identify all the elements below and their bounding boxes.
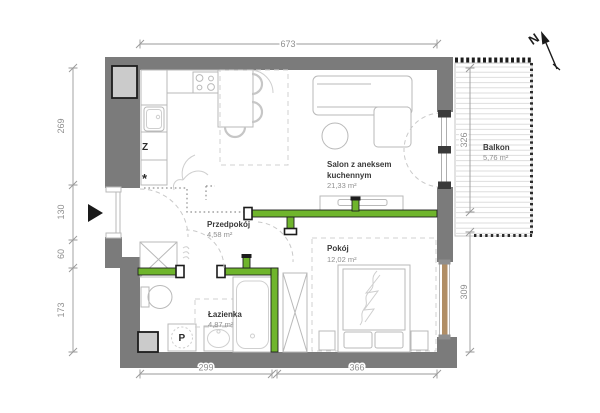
bed-pillow <box>375 332 403 348</box>
balcony-door-mullion <box>438 146 451 154</box>
bathtub-drain <box>251 334 255 338</box>
stove-burners <box>196 75 214 91</box>
room-area-balkon: 5,76 m² <box>483 153 509 162</box>
dim-left-lower-label: 173 <box>56 302 66 317</box>
green-wall-bath-right <box>221 268 278 275</box>
star-label: * <box>142 171 148 186</box>
bedroom-window-sill <box>442 264 448 335</box>
window-cap <box>439 260 451 265</box>
washer-label: P <box>179 333 186 344</box>
north-arrow-shaft <box>546 43 557 69</box>
balcony-door-mullion <box>438 182 451 190</box>
green-wall-bath-left <box>138 268 178 275</box>
dim-bottom-left-label: 299 <box>198 363 213 373</box>
dim-top-label: 673 <box>280 39 295 49</box>
floor-plan-page: Z * P <box>0 0 600 413</box>
dim-left-entry-label: 130 <box>56 204 66 219</box>
green-stub-pokoj-door <box>287 217 294 229</box>
green-stub-bath <box>243 257 250 268</box>
kitchen-sink-faucet <box>156 115 159 118</box>
north-arrow-head <box>541 31 550 45</box>
bed-pillow <box>344 332 372 348</box>
wall-left-lower <box>120 268 140 352</box>
floor-plan: Z * P <box>0 0 600 413</box>
hall-boundary-dotted <box>144 188 246 212</box>
wall-right-upper <box>437 70 453 112</box>
dining-zone-dashed <box>220 70 288 165</box>
kitchen-counter-left <box>141 70 167 185</box>
wall-left-step <box>105 257 140 268</box>
nightstand-right <box>411 331 428 350</box>
salon-furniture <box>313 76 412 213</box>
dishwasher-label: Z <box>142 142 148 153</box>
green-stub-tv-cap <box>351 197 361 201</box>
balcony-door-mullion <box>438 110 451 118</box>
green-stub-bath-cap <box>242 254 252 258</box>
kitchen-island <box>218 70 253 127</box>
stove-icon <box>193 72 218 93</box>
dim-left-mid-label: 60 <box>56 249 66 259</box>
kitchen-sink-basin <box>147 110 162 129</box>
room-label-salon-line1: Salon z aneksem <box>327 160 391 169</box>
dim-bottom-right-label: 366 <box>349 363 364 373</box>
green-wall-bath-pokoj <box>271 268 278 352</box>
door-jamb <box>176 266 184 278</box>
room-label-lazienka: Łazienka <box>208 310 242 319</box>
dim-right-lower-label: 309 <box>459 284 469 299</box>
entry-door-leaf <box>116 192 120 233</box>
coffee-table-icon <box>322 123 348 149</box>
shaft-bottom-left <box>138 332 158 352</box>
balcony-door-swing-arc <box>404 150 441 187</box>
door-jamb <box>285 229 297 235</box>
dim-line-left <box>69 64 78 356</box>
entrance-arrow-icon <box>88 204 103 222</box>
entry-frame-top <box>106 187 121 192</box>
room-area-przedpokoj: 4,58 m² <box>207 230 233 239</box>
kitchen: Z * <box>141 70 288 190</box>
window-cap <box>439 335 451 340</box>
room-label-przedpokoj: Przedpokój <box>207 220 250 229</box>
wall-bottom <box>120 352 457 368</box>
north-label: N <box>526 30 542 48</box>
coat-hooks-icon <box>183 247 189 259</box>
room-label-balkon: Balkon <box>483 143 510 152</box>
dim-left-upper-label: 269 <box>56 118 66 133</box>
room-label-salon-line2: kuchennym <box>327 171 371 180</box>
kitchen-boundary-dotted <box>206 186 215 200</box>
wall-top <box>105 57 453 70</box>
room-area-lazienka: 4,87 m² <box>208 320 234 329</box>
toilet-icon <box>148 286 172 309</box>
chair-icon <box>225 127 245 137</box>
bedroom-furniture <box>283 238 436 352</box>
room-area-pokoj: 12,02 m² <box>327 255 357 264</box>
nightstand-left <box>319 331 335 350</box>
room-area-salon: 21,33 m² <box>327 181 357 190</box>
green-wall-salon-pokoj <box>248 210 437 217</box>
green-stub-tv <box>352 199 359 211</box>
door-jamb <box>244 208 252 220</box>
room-label-pokoj: Pokój <box>327 244 349 253</box>
wall-right-mid <box>437 187 453 262</box>
bath-sink-faucet <box>217 330 220 333</box>
entry-frame-bottom <box>106 233 121 238</box>
bath-sink-basin <box>208 330 230 348</box>
bathroom-fixtures: P <box>141 277 272 352</box>
plant-decor-icon <box>173 155 208 190</box>
shaft-top-left <box>112 66 137 98</box>
entry-door-swing-arc <box>140 189 188 237</box>
dim-right-upper-label: 326 <box>459 132 469 147</box>
